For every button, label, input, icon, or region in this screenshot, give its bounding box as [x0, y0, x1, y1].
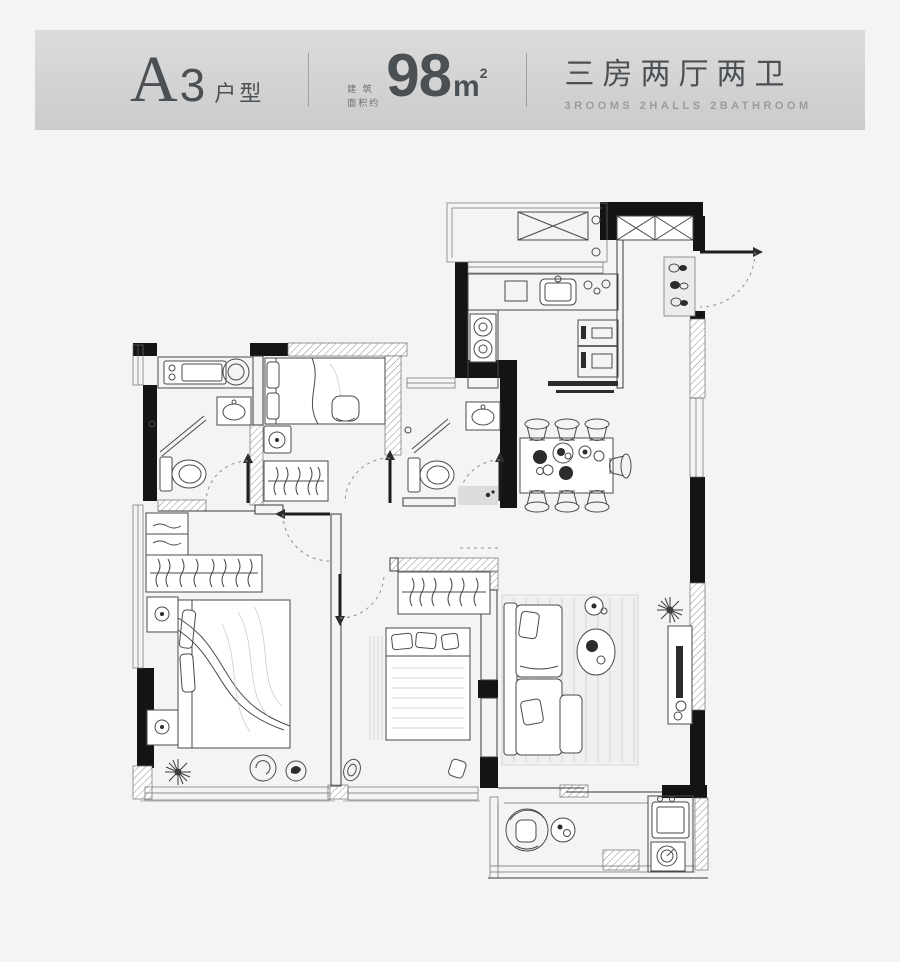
- window-south-bedroom2: [343, 787, 480, 801]
- balcony-laundry: [648, 796, 693, 872]
- entry-top-boxes: [617, 216, 693, 240]
- kitchen-shelf: [548, 381, 618, 393]
- kitchen-fridge: [578, 320, 618, 377]
- master-nightstand-2: [147, 710, 178, 745]
- bedroom3-bed: [265, 358, 385, 424]
- bath2-shower: [405, 419, 450, 453]
- bathroom-1: [149, 357, 253, 491]
- round-basin: [223, 359, 249, 385]
- cutting-board: [505, 281, 527, 301]
- master-poufs: [250, 755, 306, 781]
- window-right-dining: [690, 398, 703, 477]
- tv-console: [668, 626, 692, 724]
- dining-table: [520, 438, 613, 493]
- shoe-cabinet: [664, 257, 695, 316]
- bedroom2-stool: [341, 757, 364, 783]
- balcony-chair: [506, 809, 548, 851]
- bedroom3-armchair: [332, 396, 359, 421]
- window-south-master: [140, 787, 335, 801]
- dining-area: [520, 419, 631, 512]
- bath2-vanity: [466, 402, 500, 430]
- living-plant: [657, 597, 683, 623]
- bath1-toilet: [160, 457, 206, 491]
- master-wardrobe-long: [146, 555, 262, 592]
- living-room: [502, 595, 692, 765]
- bath1-shower: [149, 416, 206, 456]
- master-wardrobe-tall: [146, 513, 188, 555]
- coffee-table: [577, 629, 615, 675]
- bedroom2-curtain: [370, 636, 382, 740]
- entry-door: [700, 247, 763, 307]
- bedroom3-door: [345, 450, 395, 503]
- bedroom2-door: [335, 574, 384, 626]
- laundry-counter: [164, 361, 226, 384]
- ac-platform-box: [518, 212, 588, 240]
- floor-plan: [0, 0, 900, 962]
- window-bath2-top: [407, 378, 455, 388]
- kitchen-stove: [470, 314, 496, 362]
- bath1-vanity: [217, 397, 251, 425]
- master-bed: [178, 600, 290, 748]
- bedroom2-wardrobe: [398, 572, 490, 614]
- bedroom3-wardrobe: [264, 461, 328, 501]
- master-bedroom-door: [275, 509, 330, 561]
- master-bedroom: [146, 513, 306, 785]
- bedroom-2: [341, 572, 490, 783]
- bedroom-3: [264, 358, 385, 501]
- master-nightstand-1: [147, 597, 178, 632]
- floor-plan-page: A 3 户型 建 筑 面积约 98 m2 三房两厅两卫 3ROOMS 2HALL…: [0, 0, 900, 962]
- master-plant: [165, 759, 191, 785]
- north-balcony: [447, 203, 607, 262]
- balcony-table: [551, 818, 575, 842]
- bath2-mat: [458, 486, 498, 505]
- bedroom2-bed: [386, 628, 470, 740]
- kitchen-sink: [540, 276, 576, 305]
- window-left-master: [133, 505, 143, 668]
- bathroom1-door: [206, 453, 253, 503]
- window-kitchen-north: [468, 262, 603, 273]
- bedroom3-washer: [264, 426, 291, 453]
- bedroom2-cushion: [448, 758, 468, 779]
- entry: [664, 257, 695, 316]
- south-balcony: [488, 796, 708, 878]
- bathroom-2: [405, 402, 500, 505]
- bath2-toilet: [408, 458, 454, 492]
